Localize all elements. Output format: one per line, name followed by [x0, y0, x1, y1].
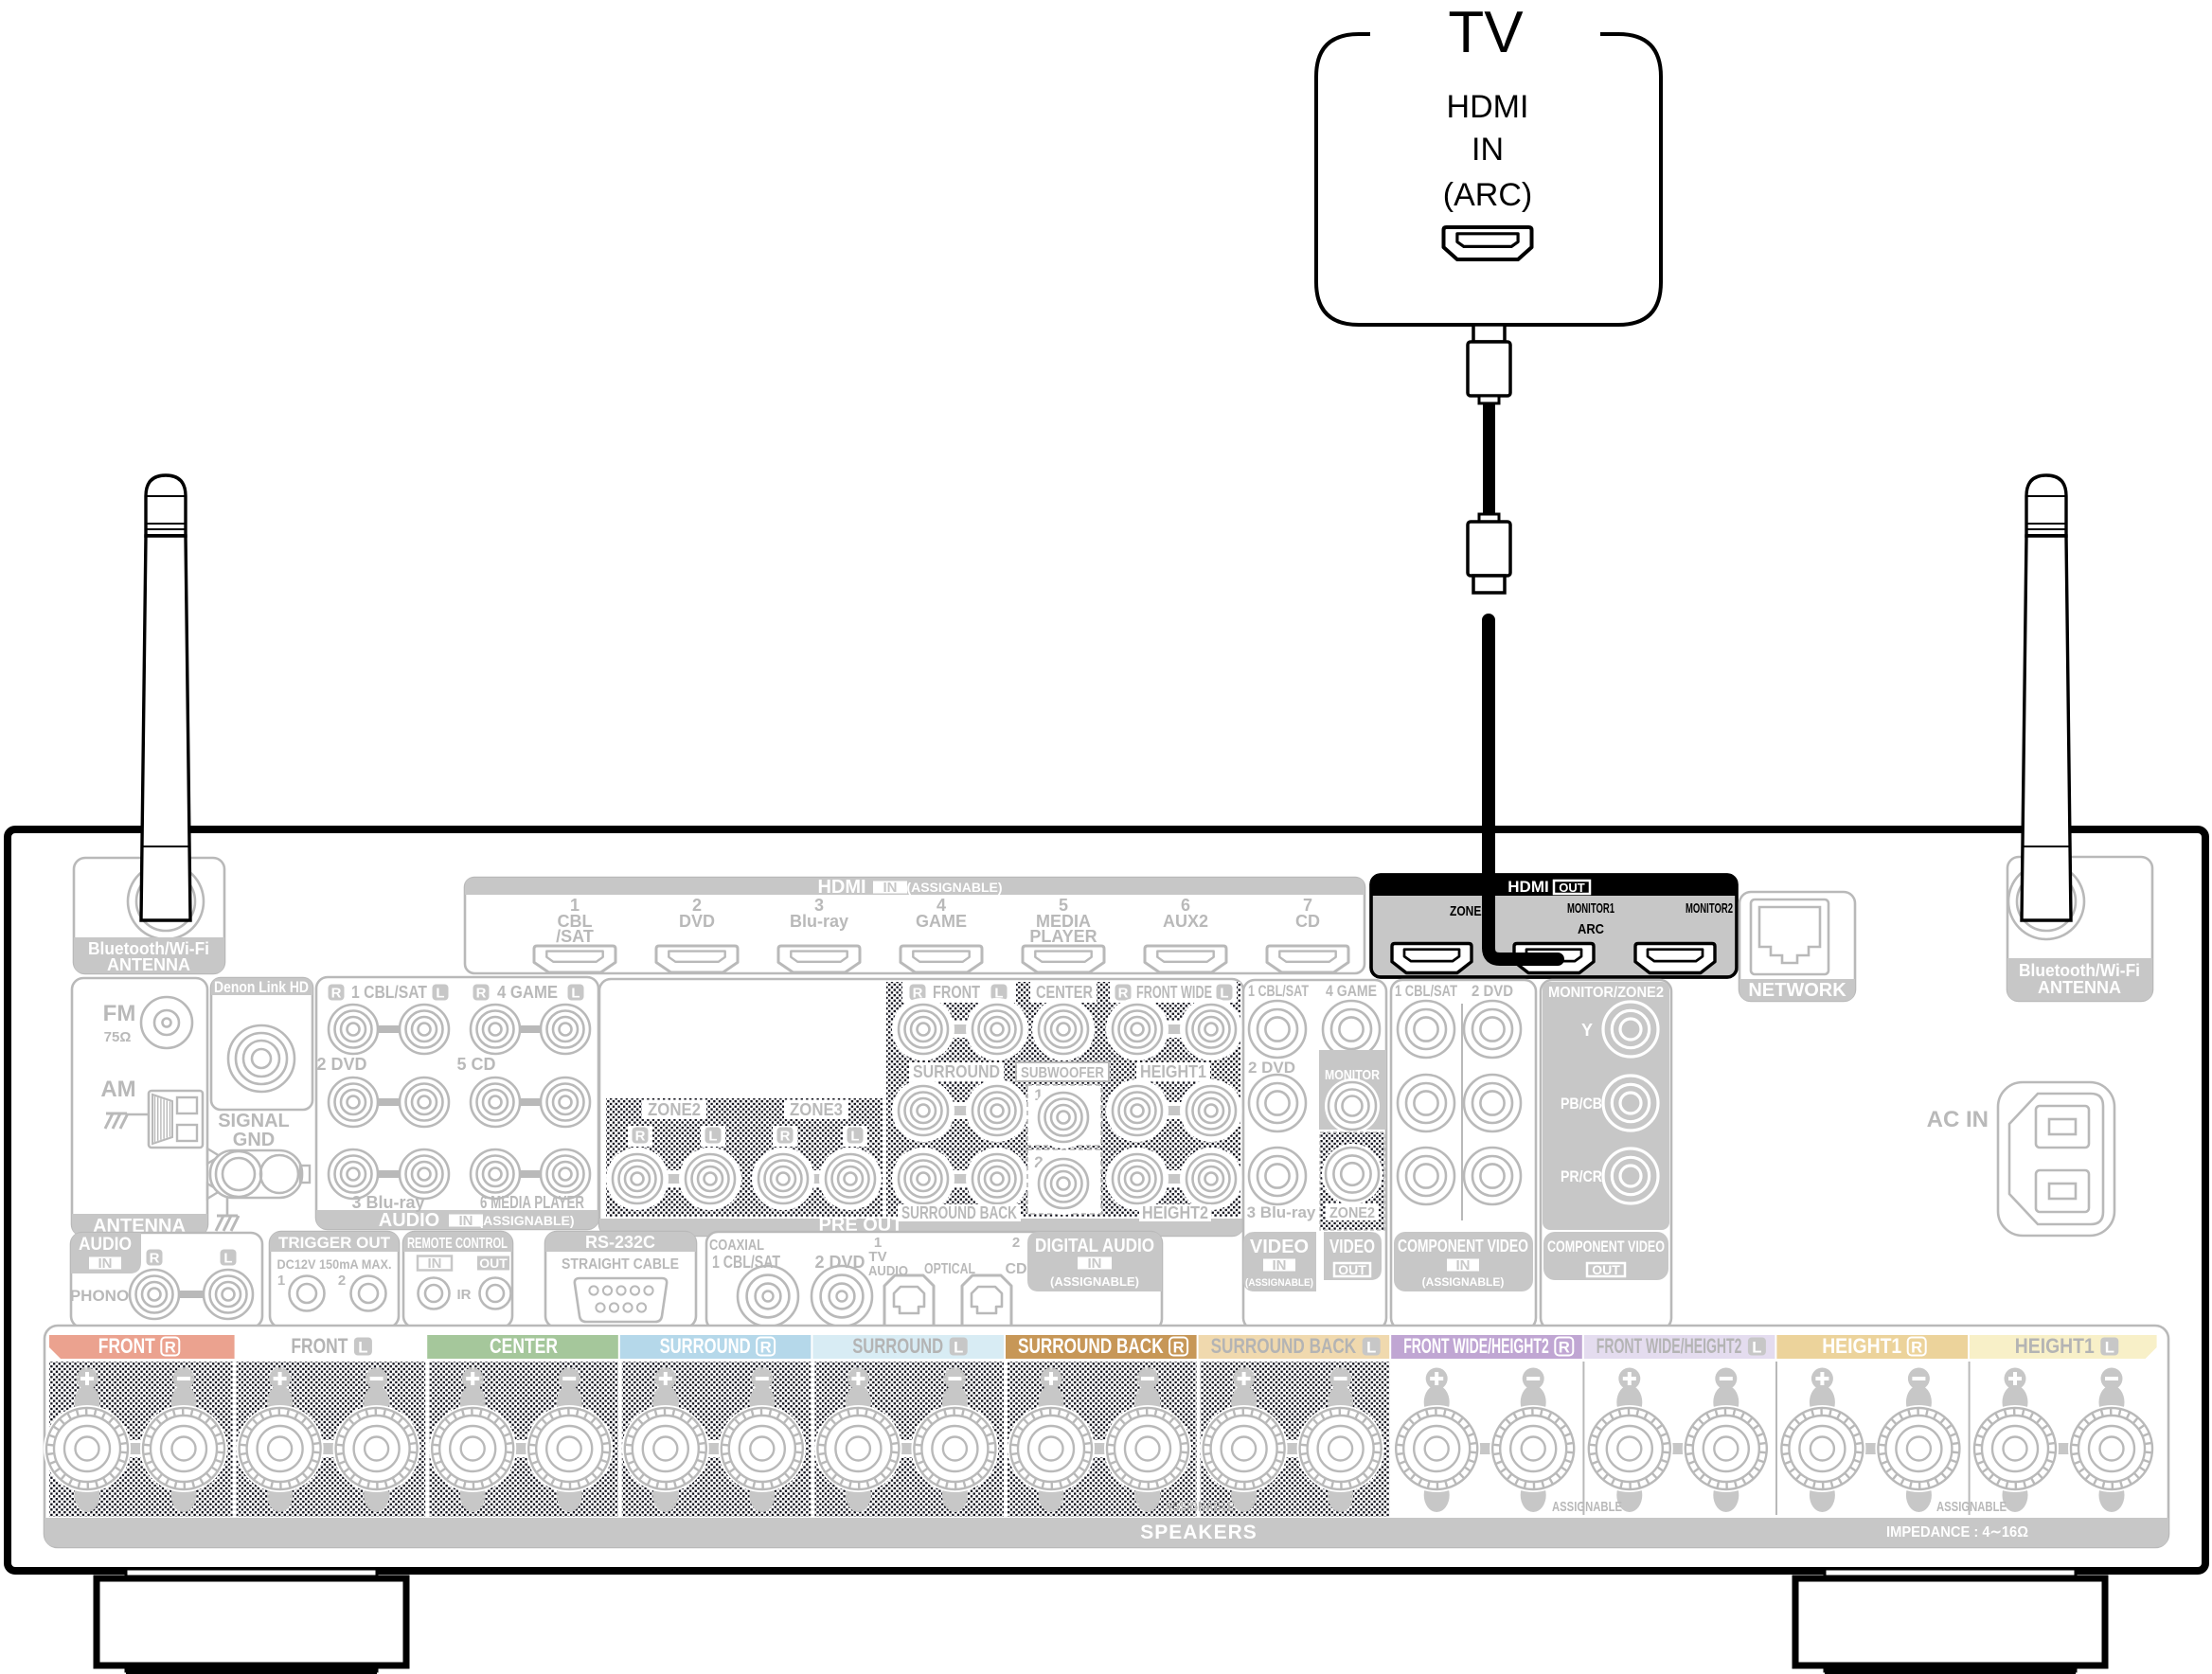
svg-text:L: L [708, 1129, 717, 1145]
svg-text:R: R [331, 986, 342, 1002]
svg-text:SURROUND BACK: SURROUND BACK [1018, 1334, 1164, 1358]
svg-text:L: L [436, 986, 444, 1002]
svg-text:2 DVD: 2 DVD [1472, 982, 1513, 1000]
svg-text:R: R [760, 1338, 772, 1356]
svg-text:Denon Link HD: Denon Link HD [214, 978, 309, 996]
svg-text:NETWORK: NETWORK [1748, 980, 1846, 1001]
svg-text:GAME: GAME [916, 912, 967, 931]
svg-text:FRONT: FRONT [98, 1334, 155, 1358]
svg-text:PR/CR: PR/CR [1561, 1167, 1602, 1185]
svg-text:R: R [1911, 1338, 1922, 1356]
svg-text:MONITOR1: MONITOR1 [1567, 900, 1614, 917]
svg-text:AUDIO: AUDIO [79, 1235, 132, 1255]
svg-text:OUT: OUT [1559, 881, 1585, 895]
svg-text:SURROUND: SURROUND [913, 1062, 1000, 1081]
svg-text:DIGITAL AUDIO: DIGITAL AUDIO [1035, 1236, 1154, 1256]
svg-text:TV: TV [1448, 0, 1524, 65]
svg-text:GND: GND [233, 1130, 275, 1150]
svg-text:PLAYER: PLAYER [1029, 927, 1097, 946]
svg-text:Y: Y [1581, 1021, 1593, 1040]
svg-text:ASSIGNABLE: ASSIGNABLE [1552, 1499, 1622, 1515]
svg-text:RS-232C: RS-232C [585, 1233, 655, 1252]
svg-text:(ASSIGNABLE): (ASSIGNABLE) [1245, 1277, 1313, 1289]
svg-text:OUT: OUT [479, 1255, 508, 1271]
svg-text:FRONT: FRONT [291, 1334, 348, 1358]
svg-text:IN: IN [1088, 1255, 1102, 1272]
svg-text:SURROUND BACK: SURROUND BACK [901, 1203, 1017, 1222]
svg-text:OUT: OUT [1592, 1262, 1620, 1277]
svg-text:L: L [571, 986, 580, 1002]
svg-text:1: 1 [277, 1273, 285, 1289]
svg-text:ZONE2: ZONE2 [648, 1100, 701, 1119]
svg-text:4 GAME: 4 GAME [497, 983, 558, 1002]
svg-text:(ASSIGNABLE): (ASSIGNABLE) [906, 880, 1002, 895]
svg-text:R: R [635, 1129, 646, 1145]
svg-text:5 CD: 5 CD [456, 1055, 495, 1074]
svg-text:HEIGHT1: HEIGHT1 [1822, 1334, 1901, 1358]
svg-text:FRONT WIDE/HEIGHT2: FRONT WIDE/HEIGHT2 [1597, 1334, 1742, 1358]
svg-text:SIGNAL: SIGNAL [218, 1111, 290, 1131]
svg-text:FM: FM [103, 1001, 136, 1026]
svg-text:SURROUND BACK: SURROUND BACK [1211, 1334, 1357, 1358]
svg-text:PHONO: PHONO [70, 1287, 129, 1305]
svg-text:1 CBL/SAT: 1 CBL/SAT [1395, 982, 1457, 1000]
svg-text:ASSIGNABLE: ASSIGNABLE [1165, 1499, 1235, 1515]
svg-text:2: 2 [338, 1273, 346, 1289]
svg-text:HDMI: HDMI [817, 877, 865, 898]
svg-text:R: R [1173, 1338, 1185, 1356]
svg-text:75Ω: 75Ω [104, 1029, 132, 1045]
svg-text:3 Blu-ray: 3 Blu-ray [1247, 1203, 1316, 1221]
svg-text:3 Blu-ray: 3 Blu-ray [351, 1193, 424, 1212]
svg-text:MONITOR2: MONITOR2 [1686, 900, 1733, 917]
svg-text:ARC: ARC [1578, 921, 1604, 937]
svg-text:R: R [165, 1338, 176, 1356]
svg-text:AUX2: AUX2 [1163, 912, 1208, 931]
svg-text:SURROUND: SURROUND [852, 1334, 943, 1358]
svg-text:OPTICAL: OPTICAL [924, 1261, 975, 1277]
svg-text:(ASSIGNABLE): (ASSIGNABLE) [1422, 1275, 1505, 1289]
svg-text:IMPEDANCE : 4∼16Ω: IMPEDANCE : 4∼16Ω [1886, 1524, 2028, 1540]
svg-text:L: L [954, 1338, 963, 1356]
svg-text:AUDIO: AUDIO [379, 1210, 439, 1231]
svg-text:2 DVD: 2 DVD [316, 1055, 366, 1074]
svg-text:COAXIAL: COAXIAL [709, 1238, 764, 1254]
svg-text:VIDEO: VIDEO [1250, 1237, 1309, 1257]
svg-text:COMPONENT VIDEO: COMPONENT VIDEO [1547, 1238, 1665, 1255]
svg-text:6 MEDIA PLAYER: 6 MEDIA PLAYER [480, 1193, 584, 1212]
svg-text:REMOTE CONTROL: REMOTE CONTROL [407, 1236, 508, 1252]
svg-text:IN: IN [1273, 1257, 1287, 1273]
svg-text:SUBWOOFER: SUBWOOFER [1021, 1065, 1104, 1081]
svg-text:IN: IN [459, 1213, 473, 1229]
svg-text:IR: IR [457, 1287, 472, 1303]
svg-text:IN: IN [1472, 132, 1504, 168]
svg-text:R: R [780, 1129, 791, 1145]
svg-text:L: L [2105, 1338, 2114, 1356]
svg-text:OUT: OUT [1338, 1262, 1366, 1277]
svg-text:L: L [358, 1338, 367, 1356]
svg-text:(ASSIGNABLE): (ASSIGNABLE) [1050, 1274, 1139, 1289]
svg-text:AC IN: AC IN [1927, 1107, 1989, 1132]
svg-text:IN: IN [883, 880, 898, 896]
svg-text:FRONT WIDE/HEIGHT2: FRONT WIDE/HEIGHT2 [1403, 1334, 1549, 1358]
svg-text:DC12V 150mA MAX.: DC12V 150mA MAX. [277, 1256, 392, 1272]
svg-text:L: L [223, 1251, 232, 1267]
svg-text:1 CBL/SAT: 1 CBL/SAT [712, 1253, 780, 1272]
svg-text:ZONE3: ZONE3 [790, 1100, 843, 1119]
svg-text:1 CBL/SAT: 1 CBL/SAT [351, 983, 427, 1002]
svg-text:ASSIGNABLE: ASSIGNABLE [1936, 1499, 2007, 1515]
svg-text:HEIGHT1: HEIGHT1 [2015, 1334, 2095, 1358]
svg-text:FRONT: FRONT [933, 983, 980, 1002]
svg-text:L: L [1752, 1338, 1761, 1356]
svg-text:ANTENNA: ANTENNA [107, 955, 190, 974]
svg-text:COMPONENT VIDEO: COMPONENT VIDEO [1398, 1237, 1528, 1255]
svg-text:R: R [476, 986, 487, 1002]
svg-text:HDMI: HDMI [1447, 89, 1529, 125]
svg-text:TRIGGER OUT: TRIGGER OUT [278, 1234, 391, 1252]
svg-text:4 GAME: 4 GAME [1326, 982, 1377, 1000]
svg-text:R: R [1118, 986, 1129, 1002]
svg-text:ANTENNA: ANTENNA [2038, 978, 2121, 997]
svg-text:2 DVD: 2 DVD [814, 1253, 865, 1272]
svg-text:IN: IN [428, 1255, 442, 1272]
svg-text:AM: AM [100, 1077, 135, 1102]
svg-text:PB/CB: PB/CB [1561, 1095, 1602, 1113]
svg-text:DVD: DVD [679, 912, 715, 931]
svg-text:VIDEO: VIDEO [1329, 1237, 1375, 1257]
svg-text:L: L [850, 1129, 859, 1145]
svg-text:1 CBL/SAT: 1 CBL/SAT [1248, 982, 1309, 1000]
svg-text:R: R [1559, 1338, 1570, 1356]
svg-text:IN: IN [98, 1255, 113, 1272]
svg-text:CD: CD [1295, 912, 1320, 931]
svg-text:(ARC): (ARC) [1443, 177, 1532, 213]
svg-text:SPEAKERS: SPEAKERS [1140, 1522, 1258, 1543]
svg-text:(ASSIGNABLE): (ASSIGNABLE) [478, 1213, 574, 1228]
svg-text:CD: CD [1005, 1261, 1026, 1277]
svg-text:HDMI: HDMI [1507, 878, 1548, 896]
svg-text:ZONE2: ZONE2 [1329, 1205, 1375, 1221]
svg-text:L: L [1220, 986, 1228, 1002]
svg-text:2: 2 [1012, 1235, 1020, 1251]
svg-text:L: L [1366, 1338, 1376, 1356]
svg-text:Bluetooth/Wi-Fi: Bluetooth/Wi-Fi [2019, 961, 2140, 980]
svg-text:R: R [150, 1251, 160, 1267]
svg-text:HEIGHT1: HEIGHT1 [1140, 1062, 1206, 1081]
svg-text:IN: IN [1456, 1257, 1471, 1273]
svg-text:SURROUND: SURROUND [660, 1334, 751, 1358]
svg-text:/SAT: /SAT [556, 927, 594, 946]
svg-text:STRAIGHT CABLE: STRAIGHT CABLE [562, 1256, 679, 1273]
svg-text:Blu-ray: Blu-ray [790, 912, 848, 931]
svg-text:CENTER: CENTER [490, 1334, 558, 1358]
svg-text:MONITOR/ZONE2: MONITOR/ZONE2 [1548, 985, 1664, 1001]
svg-text:HEIGHT2: HEIGHT2 [1142, 1203, 1208, 1222]
svg-text:FRONT WIDE: FRONT WIDE [1136, 983, 1212, 1002]
svg-text:2 DVD: 2 DVD [1248, 1059, 1295, 1077]
